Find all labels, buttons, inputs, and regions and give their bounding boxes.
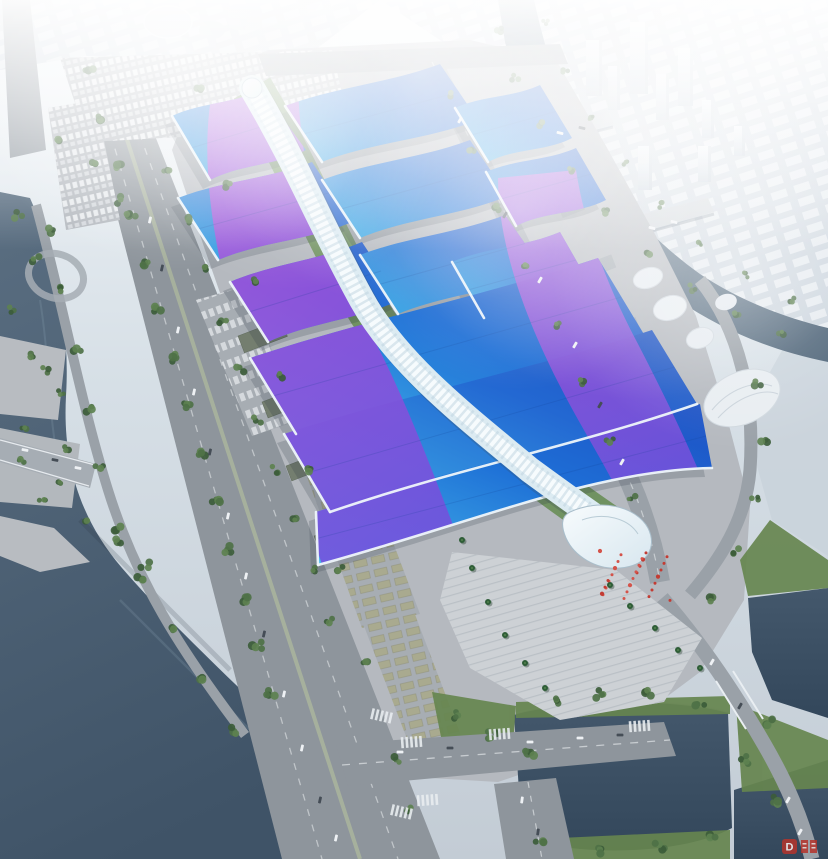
crowd-marker bbox=[626, 590, 629, 593]
exhibition-center-aerial-rendering: D bbox=[0, 0, 828, 859]
tree bbox=[305, 468, 313, 476]
palm-crown bbox=[524, 662, 526, 664]
crowd-marker bbox=[623, 597, 626, 600]
crowd-marker bbox=[611, 573, 614, 576]
tree bbox=[228, 724, 235, 731]
tree bbox=[749, 495, 755, 501]
tree bbox=[240, 368, 247, 375]
crowd-marker bbox=[641, 557, 644, 560]
crowd-marker bbox=[645, 551, 648, 554]
tree bbox=[768, 716, 776, 724]
tree bbox=[707, 598, 713, 604]
tree bbox=[735, 545, 742, 552]
tree bbox=[277, 371, 282, 376]
vehicle bbox=[447, 747, 454, 750]
tree bbox=[137, 564, 144, 571]
palm-crown bbox=[504, 634, 506, 636]
crowd-marker bbox=[635, 570, 638, 573]
crowd-marker bbox=[598, 549, 602, 553]
tree bbox=[22, 425, 27, 430]
tree bbox=[40, 365, 45, 370]
palm-crown bbox=[544, 687, 546, 689]
tree bbox=[292, 517, 297, 522]
tree bbox=[216, 498, 224, 506]
tree bbox=[243, 593, 251, 601]
tree bbox=[691, 701, 699, 709]
tree bbox=[606, 439, 613, 446]
tree bbox=[274, 470, 280, 476]
palm-crown bbox=[487, 601, 489, 603]
crowd-marker bbox=[656, 575, 660, 579]
palm-crown bbox=[461, 539, 463, 541]
crowd-marker bbox=[660, 569, 663, 572]
crowd-marker bbox=[669, 599, 672, 602]
crowd-marker bbox=[613, 566, 617, 570]
tree bbox=[232, 730, 239, 737]
aerial-rendering-stage: D bbox=[0, 0, 828, 859]
tree bbox=[41, 497, 47, 503]
crowd-marker bbox=[620, 553, 623, 556]
vehicle bbox=[527, 741, 534, 744]
tree bbox=[396, 759, 401, 764]
tree bbox=[139, 576, 146, 583]
tree-cluster bbox=[289, 515, 299, 523]
tree bbox=[453, 714, 459, 720]
crowd-marker bbox=[607, 579, 610, 582]
tree bbox=[112, 535, 120, 543]
tree bbox=[223, 318, 229, 324]
tree bbox=[58, 392, 63, 397]
tree bbox=[37, 498, 42, 503]
tree bbox=[35, 253, 42, 260]
tree bbox=[233, 364, 240, 371]
tree bbox=[225, 542, 233, 550]
tree bbox=[7, 304, 13, 310]
tree bbox=[263, 691, 270, 698]
palm-crown bbox=[677, 649, 679, 651]
palm-crown bbox=[699, 667, 701, 669]
tree bbox=[251, 414, 257, 420]
tree bbox=[701, 702, 707, 708]
palm-crown bbox=[471, 567, 473, 569]
tree bbox=[97, 465, 104, 472]
tree bbox=[170, 625, 177, 632]
tree bbox=[743, 753, 749, 759]
tree bbox=[58, 289, 64, 295]
tree bbox=[540, 838, 548, 846]
tree bbox=[198, 449, 205, 456]
crowd-marker bbox=[648, 595, 651, 598]
tree bbox=[9, 310, 14, 315]
tree bbox=[335, 568, 341, 574]
crowd-marker bbox=[654, 582, 657, 585]
tree bbox=[27, 354, 34, 361]
tree bbox=[598, 691, 605, 698]
tree bbox=[221, 549, 228, 556]
tree bbox=[270, 464, 275, 469]
crowd-marker bbox=[604, 586, 607, 589]
tree bbox=[116, 523, 124, 531]
crowd-marker bbox=[663, 562, 666, 565]
crowd-marker bbox=[600, 592, 604, 596]
tree bbox=[553, 695, 559, 701]
tree bbox=[84, 517, 91, 524]
palm-crown bbox=[654, 627, 656, 629]
tree bbox=[63, 448, 68, 453]
tree bbox=[252, 643, 260, 651]
tree bbox=[183, 404, 190, 411]
crowd-marker bbox=[651, 588, 654, 591]
tree bbox=[72, 344, 81, 353]
tree bbox=[258, 645, 265, 652]
tree bbox=[391, 753, 399, 761]
watermark-letter: D bbox=[786, 842, 794, 854]
tree bbox=[533, 839, 539, 845]
tree bbox=[652, 840, 659, 847]
tree bbox=[529, 751, 538, 760]
crowd-marker bbox=[617, 560, 620, 563]
crowd-marker bbox=[666, 555, 669, 558]
vehicle bbox=[617, 734, 624, 737]
crowd-marker bbox=[628, 583, 632, 587]
tree bbox=[326, 619, 333, 626]
tree bbox=[596, 849, 604, 857]
tree bbox=[627, 497, 631, 501]
tree bbox=[216, 320, 222, 326]
crowd-marker bbox=[632, 577, 635, 580]
tree bbox=[31, 256, 37, 262]
tree bbox=[87, 405, 95, 413]
tree bbox=[647, 692, 655, 700]
tree bbox=[522, 748, 529, 755]
tree bbox=[730, 550, 736, 556]
tree bbox=[198, 675, 206, 683]
tree bbox=[168, 352, 177, 361]
tree bbox=[45, 366, 51, 372]
tree bbox=[362, 658, 369, 665]
tree bbox=[17, 456, 24, 463]
palm-crown bbox=[609, 584, 611, 586]
vehicle bbox=[397, 751, 404, 754]
tree bbox=[712, 834, 719, 841]
tree bbox=[773, 797, 782, 806]
tree bbox=[157, 306, 165, 314]
tree bbox=[57, 480, 61, 484]
palm-crown bbox=[629, 605, 631, 607]
wharf-terrace bbox=[0, 336, 66, 420]
crowd-marker bbox=[638, 564, 641, 567]
tree bbox=[145, 564, 152, 571]
tree bbox=[755, 495, 760, 500]
tree bbox=[270, 692, 278, 700]
tree bbox=[743, 758, 750, 765]
tree bbox=[310, 568, 315, 573]
vehicle bbox=[577, 737, 584, 740]
